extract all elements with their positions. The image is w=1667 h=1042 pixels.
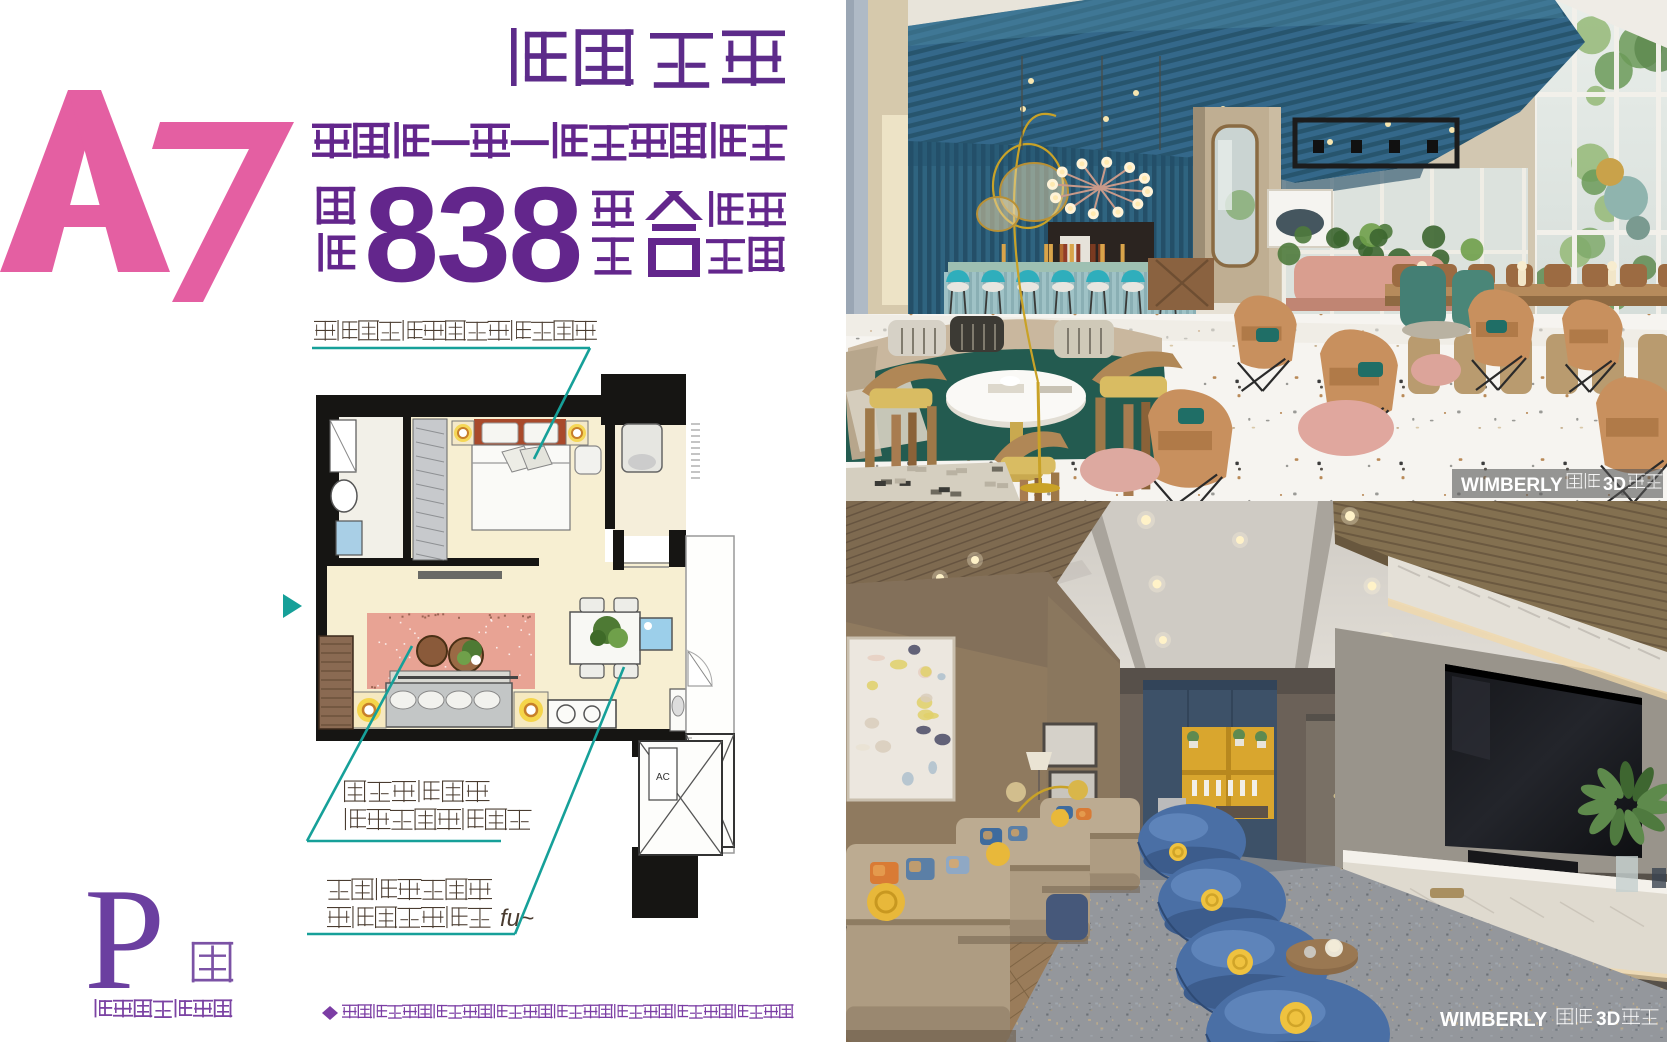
svg-text:3D: 3D — [1596, 1009, 1620, 1030]
svg-text:838: 838 — [364, 159, 580, 310]
svg-text:WIMBERLY: WIMBERLY — [1461, 475, 1563, 496]
svg-text:WIMBERLY: WIMBERLY — [1440, 1009, 1548, 1031]
svg-text:P: P — [84, 858, 165, 1020]
svg-text:AC: AC — [656, 772, 670, 783]
svg-text:3D: 3D — [1603, 474, 1626, 494]
